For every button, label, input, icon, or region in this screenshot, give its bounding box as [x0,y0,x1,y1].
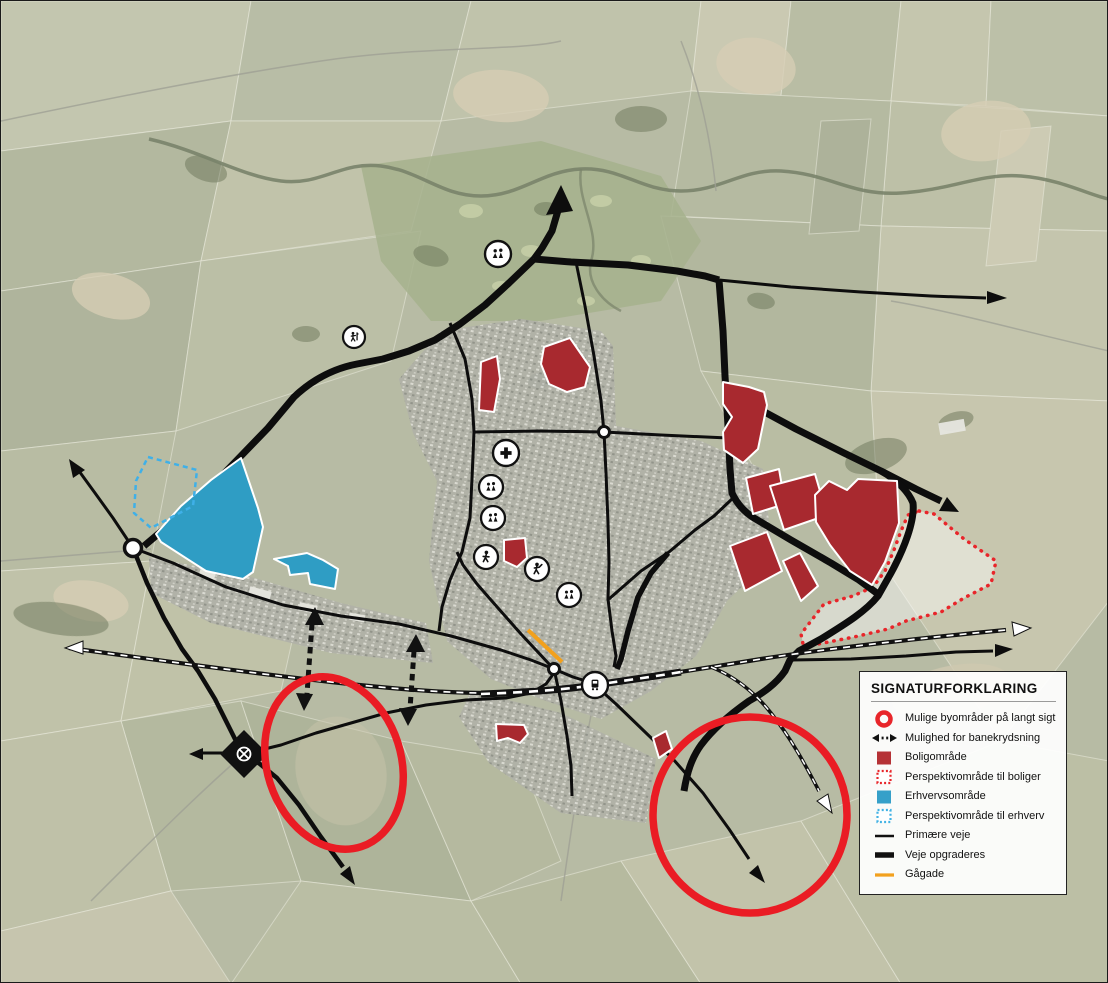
legend-item: Erhvervsområde [871,787,1056,807]
upgraded-road-swatch [871,847,898,863]
business-area-swatch [871,789,898,805]
people-icon [481,506,505,530]
golfer-icon [343,326,365,348]
legend-title: SIGNATURFORKLARING [871,681,1056,696]
legend-item-label: Veje opgraderes [905,850,985,861]
legend-item: Gågade [871,865,1056,885]
legend-divider [871,701,1056,702]
primary-road-swatch [871,828,898,844]
road-node-icon [549,664,560,675]
legend-item: Mulige byområder på langt sigt [871,709,1056,729]
medical-cross-icon [493,440,519,466]
people-icon [479,475,503,499]
legend-item-label: Primære veje [905,830,970,841]
legend-item: Perspektivområde til erhverv [871,807,1056,827]
legend-item: Primære veje [871,826,1056,846]
train-station-icon [582,672,608,698]
legend: SIGNATURFORKLARING Mulige byområder på l… [859,671,1067,895]
legend-item: Boligområde [871,748,1056,768]
residential-perspective-swatch [871,769,898,785]
legend-item-label: Gågade [905,869,944,880]
legend-item-label: Boligområde [905,752,967,763]
legend-item: Perspektivområde til boliger [871,768,1056,788]
legend-item-label: Perspektivområde til boliger [905,772,1041,783]
legend-item: Mulighed for banekrydsning [871,729,1056,749]
people-icon [557,583,581,607]
residential-area [496,724,528,743]
legend-item-label: Perspektivområde til erhverv [905,811,1044,822]
residential-area-swatch [871,750,898,766]
roundabout-icon [125,540,142,557]
legend-item-label: Mulige byområder på langt sigt [905,713,1055,724]
business-perspective-swatch [871,808,898,824]
pedestrian-icon [474,545,498,569]
sports-icon [525,557,549,581]
pedestrian-street-swatch [871,867,898,883]
rail-crossing-arrow-swatch [871,730,898,746]
long-term-urban-ring-swatch [871,709,898,728]
people-icon [485,241,511,267]
legend-item-label: Erhvervsområde [905,791,986,802]
legend-item-label: Mulighed for banekrydsning [905,733,1040,744]
planning-map-canvas: SIGNATURFORKLARING Mulige byområder på l… [0,0,1108,983]
legend-item: Veje opgraderes [871,846,1056,866]
road-node-icon [599,427,610,438]
